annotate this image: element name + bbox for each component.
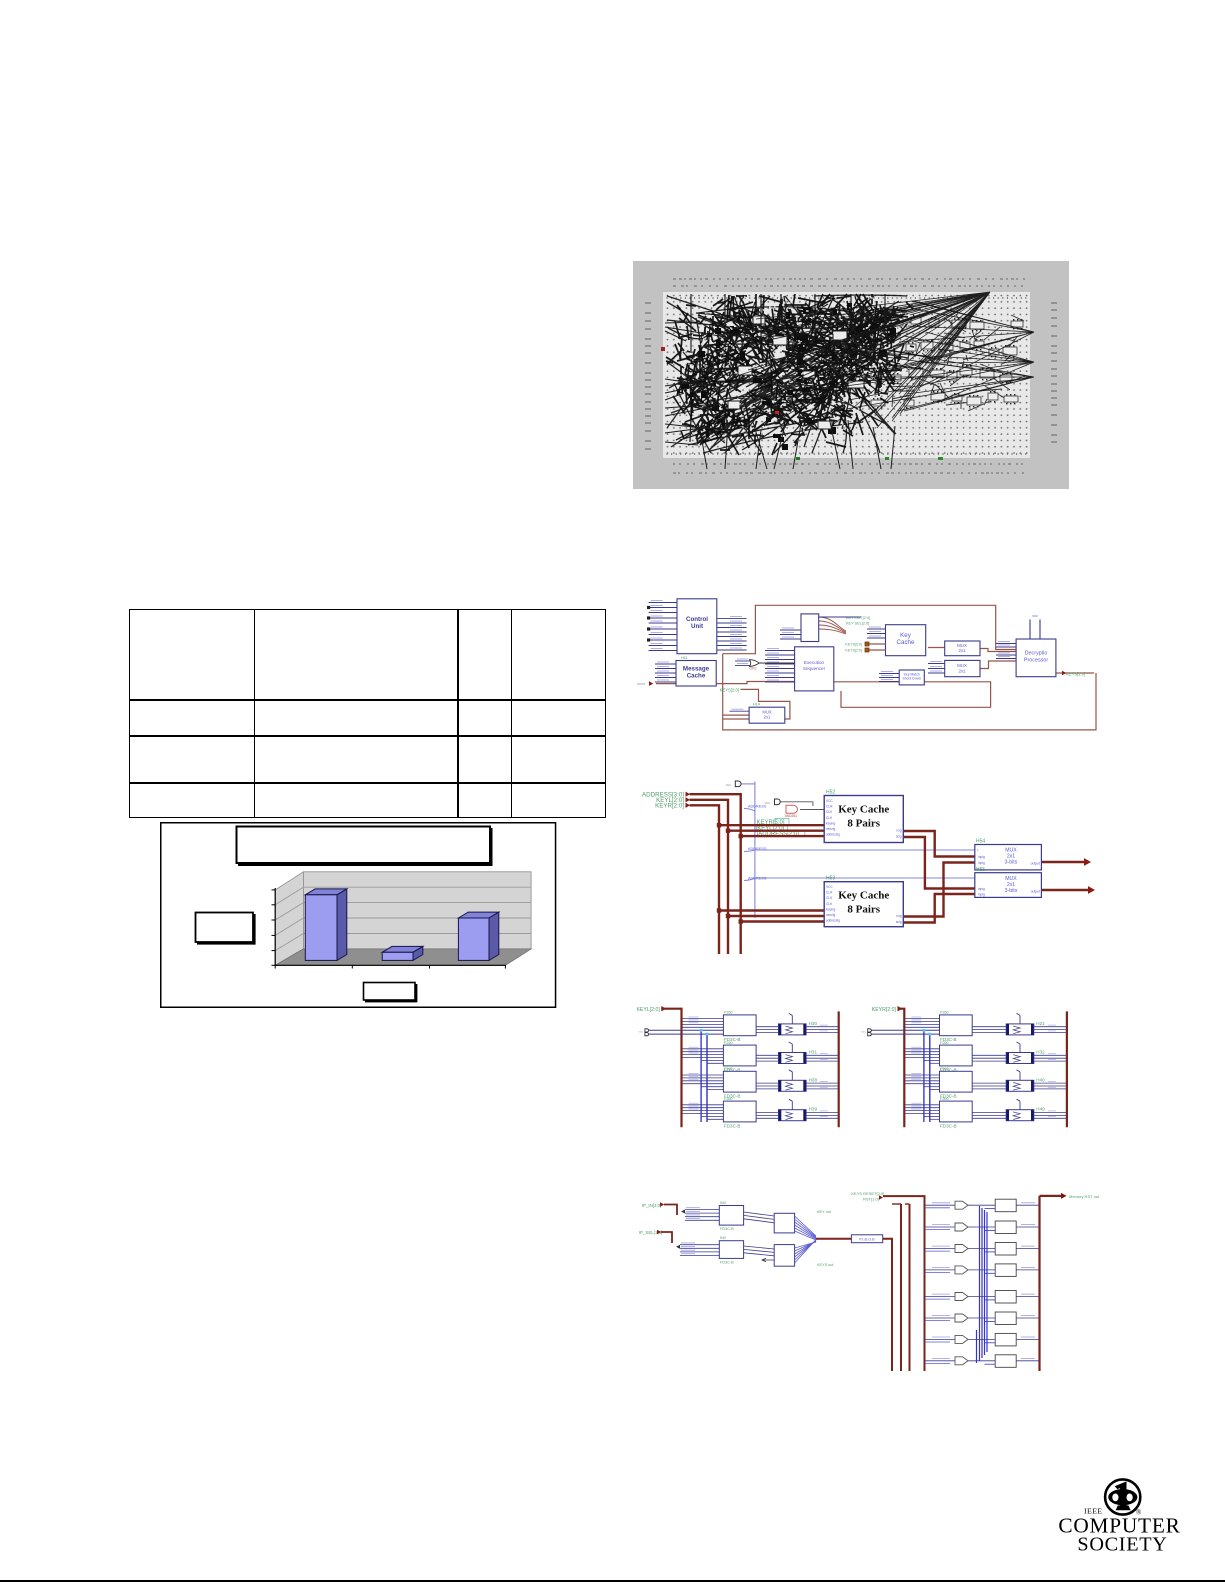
svg-text:FD3C-B: FD3C-B	[940, 1123, 957, 1128]
svg-text:KEYS out: KEYS out	[817, 1263, 834, 1267]
svg-text:2x1: 2x1	[958, 648, 966, 653]
svg-text:IN0: IN0	[720, 1201, 726, 1205]
svg-text:KEYS[5:0]: KEYS[5:0]	[845, 643, 862, 647]
svg-text:AND2B1: AND2B1	[785, 814, 798, 818]
svg-text:Message: Message	[683, 666, 710, 673]
svg-text:CLK: CLK	[826, 810, 833, 814]
svg-text:IP_IN[3:0]: IP_IN[3:0]	[642, 1203, 662, 1208]
svg-text:CLK: CLK	[826, 896, 833, 900]
svg-text:F260: F260	[940, 1067, 949, 1071]
svg-text:2x1: 2x1	[958, 669, 966, 674]
svg-text:Decryptio: Decryptio	[1025, 651, 1048, 657]
svg-text:output: output	[1031, 890, 1040, 894]
svg-text:ADDRESS: ADDRESS	[748, 805, 767, 809]
svg-text:H11: H11	[681, 656, 688, 660]
svg-text:H55: H55	[976, 867, 985, 873]
svg-text:F260: F260	[724, 1097, 733, 1101]
svg-text:verizig: verizig	[826, 913, 835, 917]
svg-text:FD3C-B: FD3C-B	[724, 1123, 741, 1128]
svg-text:inpig: inpig	[978, 887, 985, 891]
svg-text:Cache: Cache	[687, 673, 706, 680]
svg-text:Key Cache: Key Cache	[838, 890, 889, 902]
svg-text:H21: H21	[1036, 1021, 1045, 1026]
svg-text:Memory RST out: Memory RST out	[1069, 1194, 1100, 1199]
svg-text:MUX: MUX	[957, 663, 967, 668]
svg-text:KEY out: KEY out	[817, 1210, 832, 1214]
svg-text:scig: scig	[896, 920, 902, 924]
svg-text:Cache: Cache	[897, 639, 915, 646]
svg-text:RST[1:0]: RST[1:0]	[863, 1197, 879, 1202]
svg-text:scig: scig	[896, 835, 902, 839]
svg-text:H40: H40	[1036, 1077, 1045, 1082]
svg-text:vcc: vcc	[765, 801, 771, 805]
svg-text:VCC: VCC	[826, 885, 833, 889]
svg-text:P.I.B.O.B: P.I.B.O.B	[859, 1238, 875, 1242]
svg-text:8 Pairs: 8 Pairs	[847, 818, 880, 830]
svg-text:F260: F260	[940, 1097, 949, 1101]
svg-text:Execution: Execution	[804, 660, 825, 665]
svg-text:keying: keying	[826, 821, 835, 825]
svg-text:KEYR[2:0]: KEYR[2:0]	[655, 803, 684, 810]
svg-text:FD3C-B: FD3C-B	[720, 1227, 734, 1231]
svg-text:8 Pairs: 8 Pairs	[847, 904, 880, 916]
svg-text:ADDRESS: ADDRESS	[748, 877, 767, 881]
svg-text:vcc: vcc	[1032, 614, 1038, 618]
svg-text:H52: H52	[826, 790, 835, 796]
svg-text:CLK: CLK	[826, 816, 833, 820]
svg-text:H49: H49	[1036, 1107, 1045, 1112]
svg-text:inpig: inpig	[978, 855, 985, 859]
svg-text:keying: keying	[826, 907, 835, 911]
svg-text:verizig: verizig	[826, 827, 835, 831]
svg-text:H39: H39	[809, 1107, 818, 1112]
svg-text:F260: F260	[724, 1011, 733, 1015]
svg-text:Processor: Processor	[1024, 658, 1048, 664]
svg-text:vcc: vcc	[639, 1030, 644, 1034]
svg-text:SOCIETY: SOCIETY	[1077, 1534, 1167, 1556]
svg-text:KEYR[2:0]: KEYR[2:0]	[872, 1007, 897, 1013]
svg-text:addressig: addressig	[826, 833, 840, 837]
svg-text:VCC: VCC	[826, 799, 833, 803]
svg-text:H53: H53	[826, 876, 835, 882]
svg-text:KEY SEL[2:0]: KEY SEL[2:0]	[846, 622, 869, 626]
svg-text:3-bits: 3-bits	[1005, 888, 1018, 894]
svg-text:H54: H54	[976, 839, 985, 845]
svg-text:Unit: Unit	[691, 623, 703, 630]
svg-text:H38: H38	[809, 1077, 818, 1082]
svg-text:Sequencer: Sequencer	[803, 666, 826, 671]
svg-text:F260: F260	[724, 1041, 733, 1045]
svg-text:FD3C-B: FD3C-B	[720, 1260, 734, 1264]
svg-text:KEYS RESET[2:0]: KEYS RESET[2:0]	[851, 1191, 884, 1196]
svg-text:inpig: inpig	[978, 861, 985, 865]
svg-text:vcc: vcc	[861, 1030, 866, 1034]
svg-text:KEYS[2:0]: KEYS[2:0]	[845, 649, 862, 653]
svg-text:KEYL[2:0]: KEYL[2:0]	[636, 1007, 660, 1013]
svg-text:CLK: CLK	[826, 902, 833, 906]
svg-text:inpig: inpig	[978, 893, 985, 897]
svg-text:vcc: vcc	[726, 783, 732, 787]
svg-text:Shoot Down: Shoot Down	[902, 677, 921, 681]
svg-text:2x1: 2x1	[764, 715, 771, 720]
svg-text:3-bits: 3-bits	[1005, 860, 1018, 866]
svg-text:Control: Control	[686, 616, 708, 623]
svg-text:H14: H14	[753, 703, 760, 707]
svg-text:rcig: rcig	[896, 914, 901, 918]
svg-text:CLR: CLR	[826, 891, 833, 895]
svg-text:H30: H30	[809, 1021, 818, 1026]
svg-text:F260: F260	[724, 1067, 733, 1071]
svg-text:H31: H31	[809, 1050, 818, 1055]
svg-text:Key Cache: Key Cache	[838, 804, 889, 816]
svg-text:IN0: IN0	[720, 1236, 726, 1240]
svg-text:H32: H32	[1036, 1050, 1045, 1055]
svg-text:addressig: addressig	[826, 919, 840, 923]
svg-text:Key: Key	[900, 632, 912, 639]
svg-text:CLR: CLR	[826, 805, 833, 809]
svg-text:ADDRESS: ADDRESS	[748, 847, 767, 851]
svg-text:reset: reset	[637, 682, 645, 686]
svg-text:output: output	[1031, 862, 1040, 866]
svg-text:rcig: rcig	[896, 829, 901, 833]
svg-text:OR2: OR2	[750, 667, 757, 671]
svg-text:KEYS[2:0]: KEYS[2:0]	[720, 687, 739, 692]
svg-text:F260: F260	[940, 1041, 949, 1045]
svg-text:F260: F260	[940, 1011, 949, 1015]
svg-text:KEYS[2:0]: KEYS[2:0]	[1066, 671, 1085, 676]
